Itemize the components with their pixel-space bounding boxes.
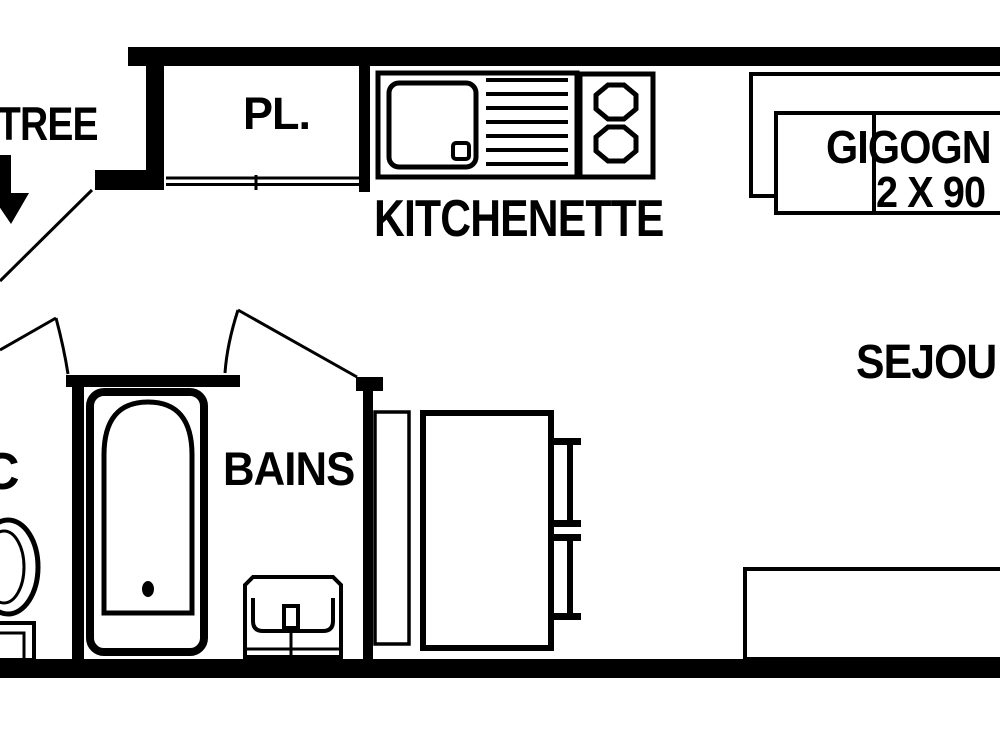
cabinet-icon (375, 412, 409, 644)
bathtub-icon (90, 392, 204, 652)
table-icon (423, 413, 551, 648)
bathroom-label: BAINS (223, 445, 354, 492)
entrance-label: TREE (0, 100, 98, 147)
floor-plan-drawing (0, 0, 1000, 750)
sofa-icon (745, 569, 1000, 659)
closet-sliding-doors (166, 175, 359, 190)
wc-door-swing (0, 318, 68, 374)
kitchenette-label: KITCHENETTE (374, 193, 663, 245)
toilet-icon (0, 520, 38, 660)
closet-right-wall (359, 66, 370, 192)
trundle-beds-size-label: 2 X 90 (876, 171, 985, 215)
entry-wall (95, 47, 164, 190)
bottom-wall (0, 659, 1000, 678)
living-room-label: SEJOU (856, 339, 996, 387)
trundle-beds-label: GIGOGN (826, 124, 991, 170)
washbasin-icon (245, 577, 341, 657)
chair-icon (554, 538, 581, 618)
chair-icon (554, 442, 581, 525)
bathroom-door-swing (225, 310, 357, 377)
cooktop-icon (580, 74, 653, 177)
floor-plan: TREE PL. KITCHENETTE GIGOGN 2 X 90 SEJOU… (0, 0, 1000, 750)
wc-label: C (0, 446, 19, 498)
kitchen-sink-icon (378, 73, 577, 177)
top-wall (128, 47, 1000, 66)
entrance-arrow-icon (0, 155, 29, 224)
closet-label: PL. (243, 91, 310, 136)
